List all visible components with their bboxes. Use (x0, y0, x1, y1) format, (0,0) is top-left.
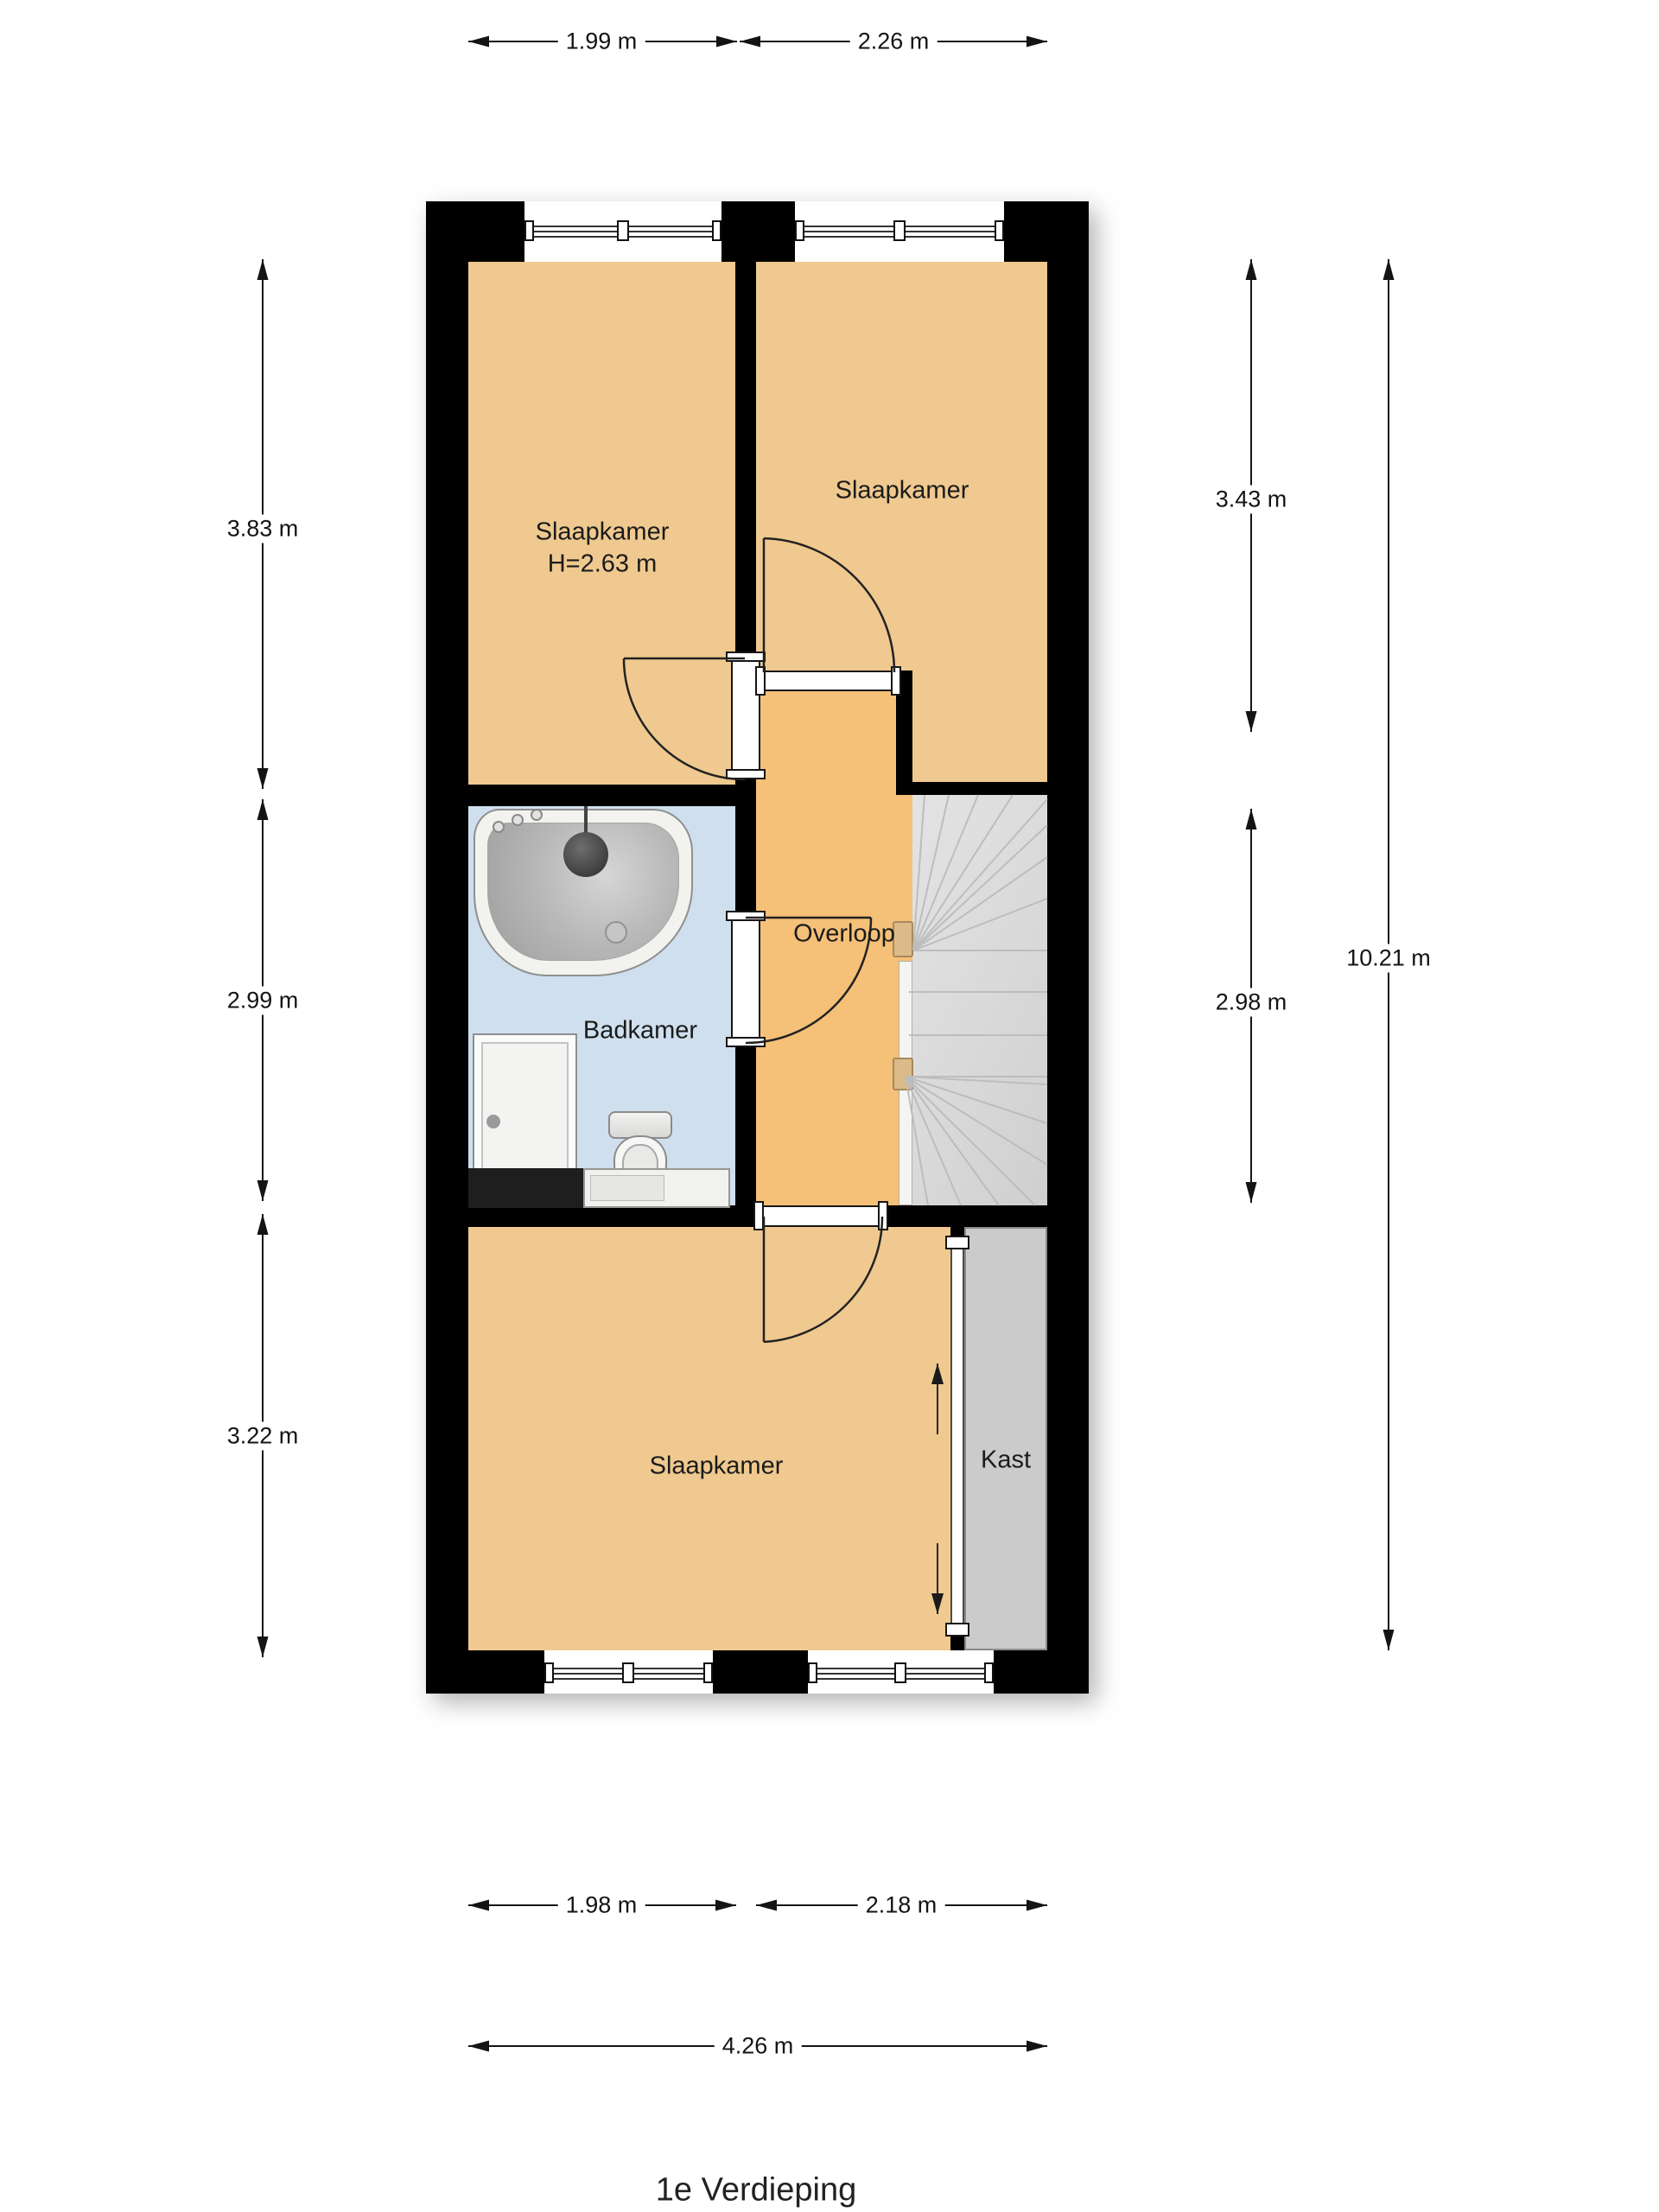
bathtub-faucet (584, 806, 588, 836)
window-bottom-right (808, 1650, 994, 1694)
doorframe-block (753, 1201, 764, 1230)
room-label-bedroom-top-right: Slaapkamer (836, 477, 969, 505)
floor-closet (964, 1227, 1047, 1650)
window-top-right (795, 201, 1004, 262)
wall-outer-left (426, 201, 468, 1694)
wall-bedroom1-bathroom (468, 785, 756, 806)
doorframe-block (726, 652, 766, 662)
dim-label-right-total: 10.21 m (1338, 944, 1439, 973)
window-jamb (795, 220, 804, 241)
dim-label-bottom-total: 4.26 m (715, 2032, 802, 2061)
window-mullion (622, 1662, 634, 1683)
doorframe-block (878, 1201, 888, 1230)
window-jamb (808, 1662, 817, 1683)
shower-drain (486, 1115, 500, 1128)
dim-label-right-2: 2.98 m (1208, 988, 1295, 1017)
closet-track-block (945, 1236, 969, 1249)
room-label-bedroom-bottom: Slaapkamer (650, 1452, 784, 1481)
window-jamb (544, 1662, 554, 1683)
room-label-bedroom-top-left: Slaapkamer (536, 518, 670, 547)
bathroom-vanity (468, 1168, 583, 1208)
doorframe-block (755, 666, 766, 696)
floorplan-building: Slaapkamer H=2.63 m Slaapkamer Overloop … (0, 0, 1659, 2212)
banister-post (893, 921, 913, 957)
bathtub-knob (512, 814, 524, 826)
floor-bedroom-bottom (468, 1227, 950, 1650)
doorframe-block (891, 666, 901, 696)
doorframe-block (726, 769, 766, 779)
dim-label-right-1: 3.43 m (1208, 486, 1295, 514)
bathroom-counter (583, 1168, 730, 1208)
dim-label-top-2: 2.26 m (850, 28, 938, 56)
window-jamb (703, 1662, 713, 1683)
bathtub-drain (605, 921, 627, 944)
doorframe-bathroom (731, 914, 760, 1044)
floorplan-page: Slaapkamer H=2.63 m Slaapkamer Overloop … (0, 0, 1659, 2212)
window-mullion (617, 220, 629, 241)
doorframe-block (726, 1037, 766, 1047)
banister-post (893, 1058, 913, 1090)
floor-landing (756, 691, 912, 1205)
dim-label-left-2: 2.99 m (219, 987, 307, 1015)
wall-bathroom-landing-lower (735, 1044, 756, 1205)
wall-bathroom-landing-upper (735, 776, 756, 914)
bathtub-knob (493, 821, 505, 833)
wall-bedrooms-divider (735, 262, 756, 655)
dim-label-bottom-1: 1.98 m (558, 1891, 645, 1920)
wall-stairs-top (912, 782, 1047, 795)
window-jamb (524, 220, 534, 241)
room-height-bedroom-top-left: H=2.63 m (548, 550, 658, 579)
window-jamb (984, 1662, 994, 1683)
window-jamb (995, 220, 1004, 241)
floor-title: 1e Verdieping (656, 2172, 856, 2209)
window-bottom-left (544, 1650, 713, 1694)
room-label-closet: Kast (981, 1446, 1031, 1475)
floor-stairs (912, 795, 1047, 1205)
bathtub-knob (531, 809, 543, 821)
closet-track-block (945, 1623, 969, 1637)
bathtub-jet (563, 832, 608, 877)
doorframe-bedroom2 (759, 671, 898, 691)
doorframe-bedroom3 (757, 1205, 885, 1227)
dim-label-left-3: 3.22 m (219, 1422, 307, 1451)
dim-label-bottom-2: 2.18 m (858, 1891, 945, 1920)
window-top-left (524, 201, 721, 262)
dim-label-top-1: 1.99 m (558, 28, 645, 56)
room-label-bathroom: Badkamer (583, 1017, 697, 1046)
bathroom-counter-inner (590, 1175, 664, 1201)
window-mullion (893, 220, 906, 241)
wall-outer-right (1047, 201, 1089, 1694)
dim-label-left-1: 3.83 m (219, 515, 307, 543)
window-mullion (894, 1662, 906, 1683)
doorframe-block (726, 911, 766, 921)
closet-sliding-door-track (950, 1242, 964, 1631)
window-jamb (712, 220, 721, 241)
room-label-landing: Overloop (793, 920, 895, 949)
